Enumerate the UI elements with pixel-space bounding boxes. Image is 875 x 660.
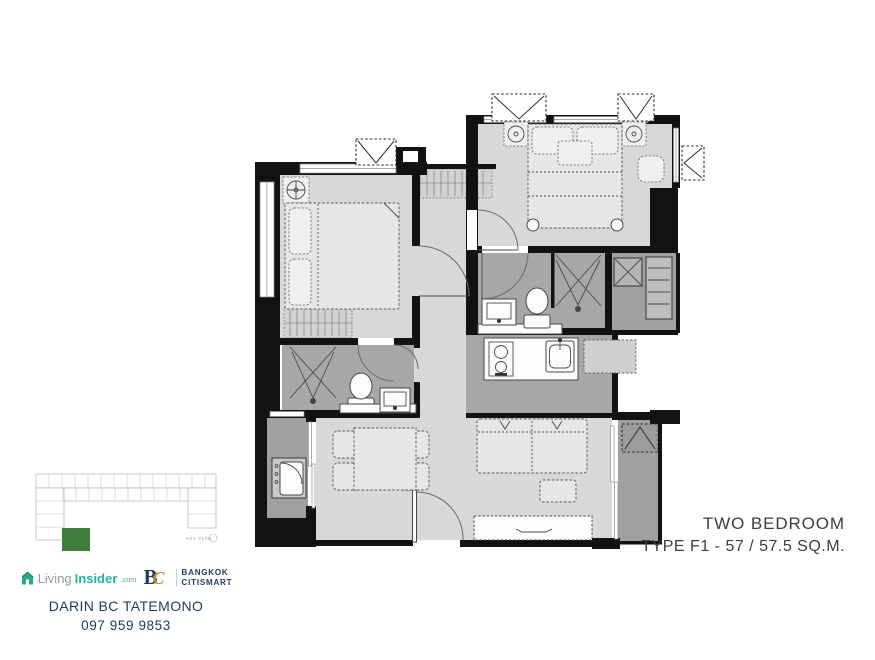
logo-divider	[176, 569, 177, 587]
kitchen-sink-icon	[546, 338, 574, 372]
nightstand-master-right	[622, 122, 646, 146]
window-bedroom-2-left	[260, 182, 274, 297]
living-insider-insider: Insider	[75, 571, 118, 586]
agent-phone: 097 959 9853	[22, 618, 230, 633]
bangkok-text: BANGKOK	[182, 568, 233, 578]
ac-condenser-balcony	[622, 424, 658, 452]
bed-master	[527, 124, 623, 231]
bangkok-citismart-text: BANGKOK CITISMART	[182, 568, 233, 589]
house-icon	[20, 571, 35, 586]
toilet-master	[524, 288, 550, 328]
fridge	[584, 340, 636, 373]
bc-monogram-icon: B C	[144, 567, 171, 589]
citismart-text: CITISMART	[182, 578, 233, 588]
coffee-table	[540, 480, 576, 502]
bc-letter-c: C	[153, 568, 165, 589]
room-corridor	[412, 168, 468, 418]
key-plan: KEY PLAN	[36, 474, 217, 551]
living-insider-tld: .com	[120, 575, 136, 584]
agent-name: DARIN BC TATEMONO	[22, 598, 230, 614]
dining-table	[354, 428, 416, 490]
ac-unit-icon	[356, 139, 396, 165]
living-insider-logo: LivingInsider.com	[20, 571, 137, 586]
logo-row: LivingInsider.com B C BANGKOK CITISMART	[22, 564, 230, 592]
sliding-door-utility	[309, 422, 316, 508]
nightstand-fan-bedroom-2	[283, 177, 309, 203]
window-utility-balcony	[270, 412, 304, 417]
wardrobe-bedroom-2	[284, 308, 352, 338]
ac-unit-icon	[682, 146, 704, 180]
sofa	[477, 419, 587, 473]
nightstand-master-left	[504, 122, 528, 146]
washing-machine	[272, 458, 306, 498]
key-plan-label: KEY PLAN	[186, 536, 212, 541]
footer-branding: LivingInsider.com B C BANGKOK CITISMART …	[22, 564, 230, 633]
living-insider-living: Living	[38, 571, 72, 586]
ac-unit-icon	[618, 94, 654, 121]
ac-unit-icon	[492, 94, 546, 121]
ottoman-master	[638, 156, 664, 182]
plan-title: TWO BEDROOM TYPE F1 - 57 / 57.5 SQ.M.	[641, 513, 845, 557]
key-plan-unit-highlight	[62, 528, 90, 551]
plan-title-line2: TYPE F1 - 57 / 57.5 SQ.M.	[641, 537, 845, 557]
bangkok-citismart-logo: B C BANGKOK CITISMART	[144, 567, 233, 589]
floor-plan-page: KEY PLAN TWO BEDROOM TYPE F1 - 57 / 57.5…	[0, 0, 875, 660]
tv-console	[474, 516, 592, 540]
window-master-right	[674, 128, 679, 182]
floor-plan: KEY PLAN	[0, 0, 875, 660]
bed-bedroom-2	[285, 203, 399, 309]
plan-title-line1: TWO BEDROOM	[641, 513, 845, 534]
